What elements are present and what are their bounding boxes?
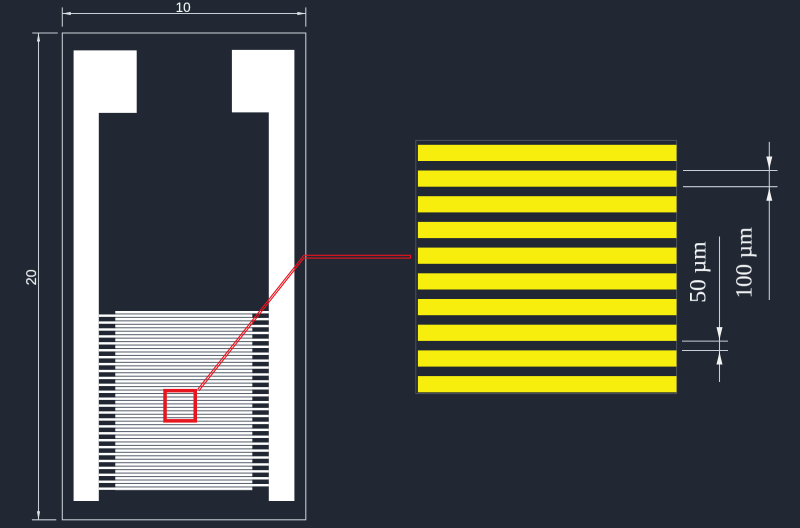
svg-text:50 µm: 50 µm (686, 241, 712, 302)
svg-text:20: 20 (24, 269, 40, 285)
svg-text:10: 10 (176, 0, 191, 15)
svg-text:100 µm: 100 µm (732, 227, 757, 298)
